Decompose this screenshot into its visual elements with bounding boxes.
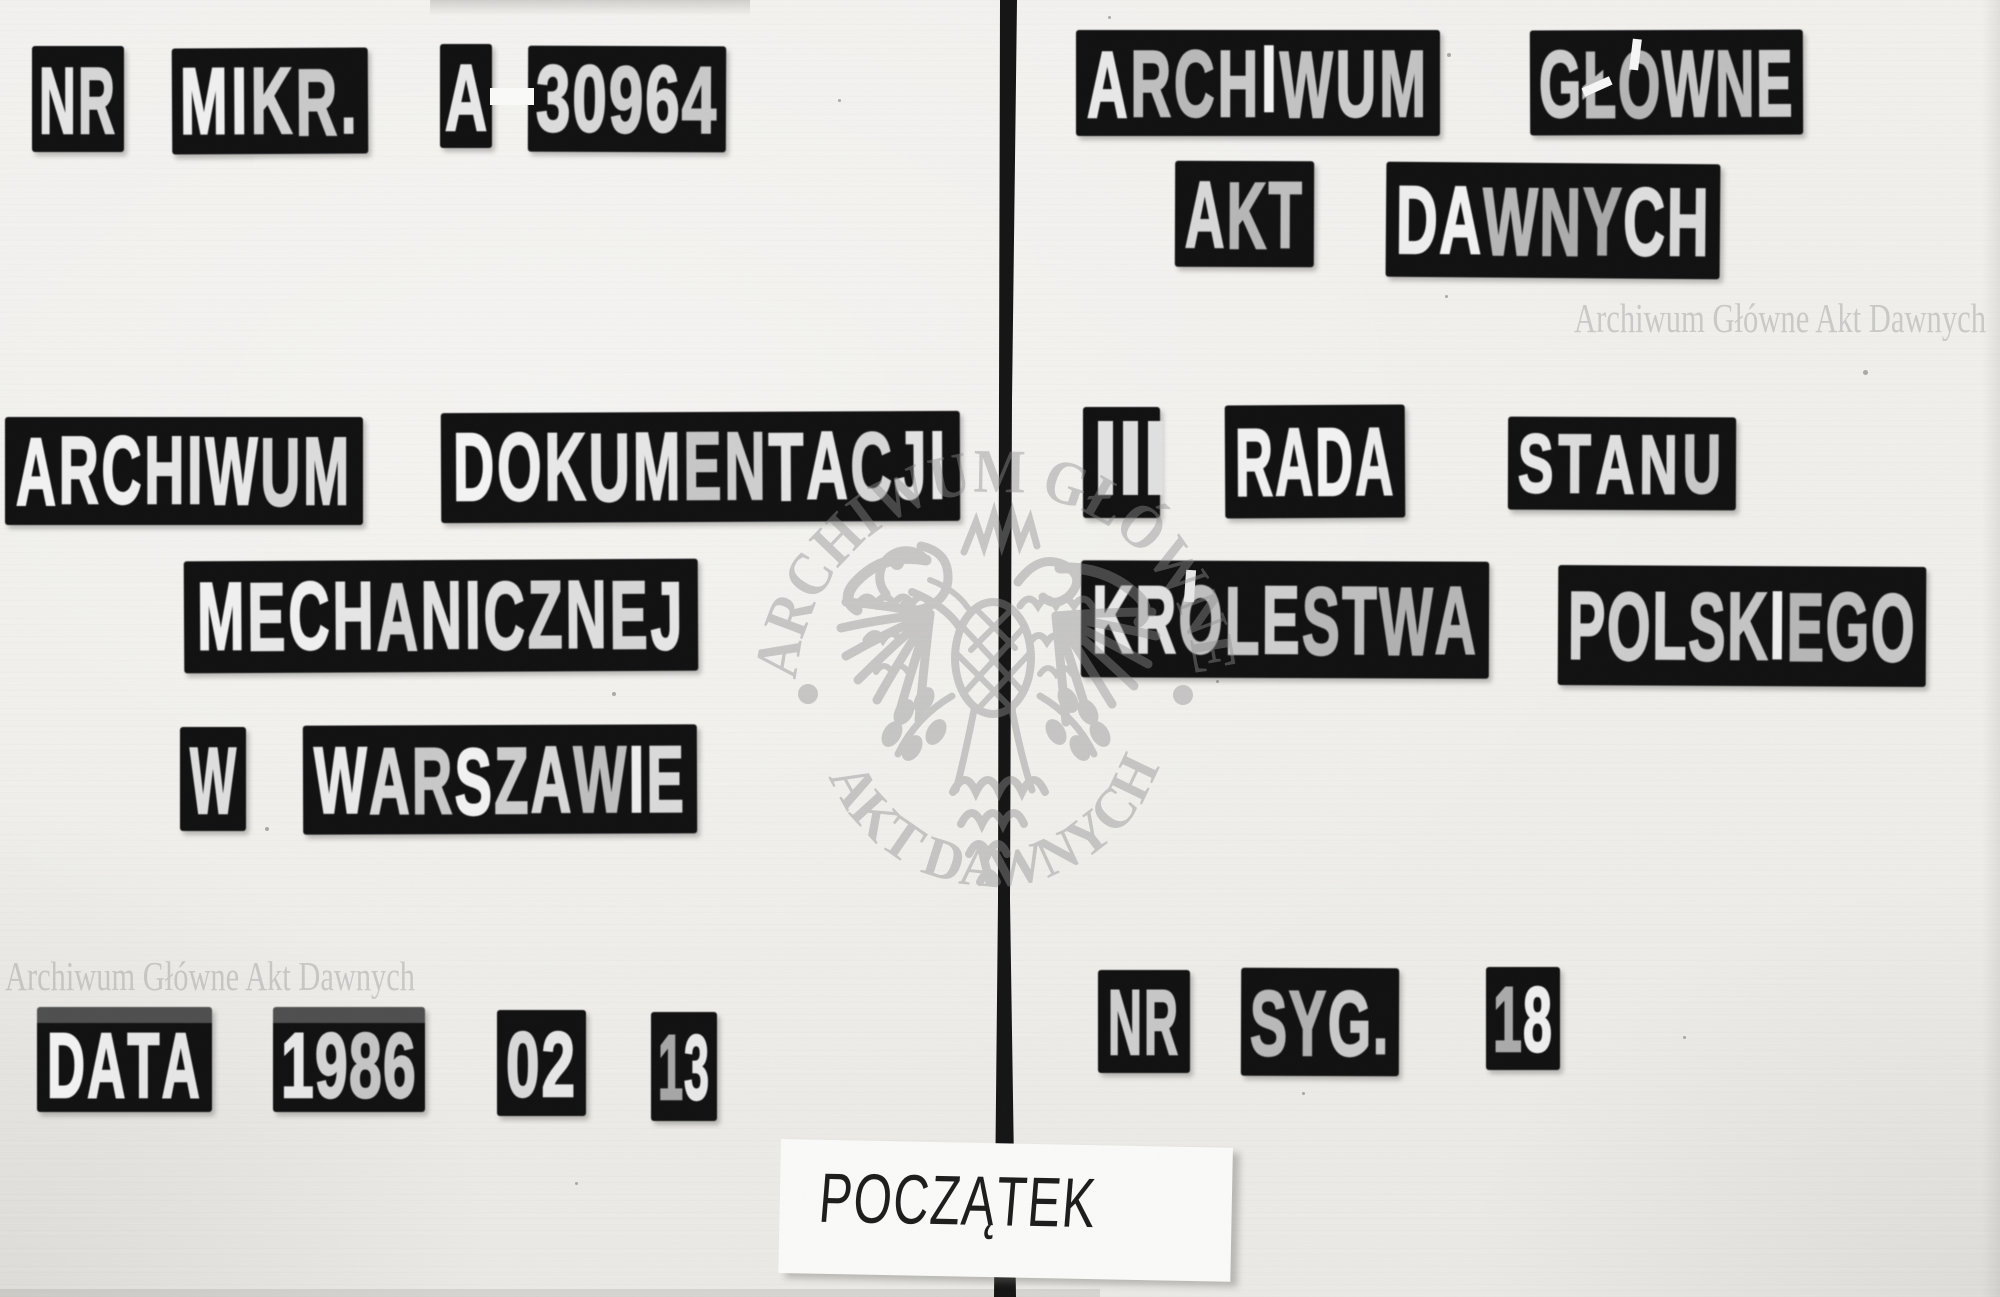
- svg-text:Archiwum Główne Akt Dawnych: Archiwum Główne Akt Dawnych: [5, 953, 415, 999]
- svg-text:AKT DAWNYCH: AKT DAWNYCH: [817, 745, 1172, 901]
- svg-text:Archiwum Główne Akt Dawnych: Archiwum Główne Akt Dawnych: [1574, 295, 1986, 341]
